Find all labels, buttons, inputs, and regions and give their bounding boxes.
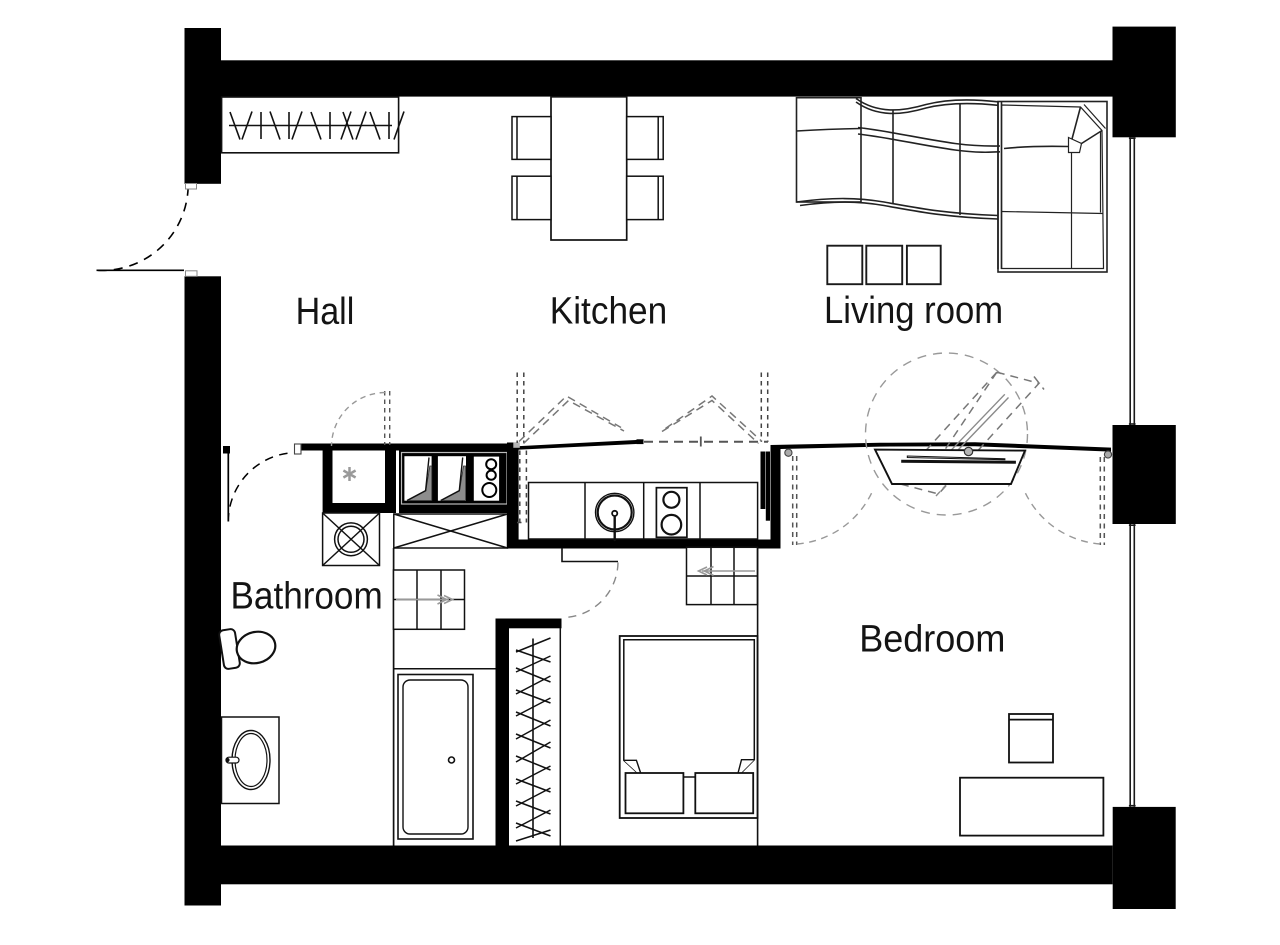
svg-text:Living room: Living room xyxy=(824,288,1003,331)
svg-text:Bedroom: Bedroom xyxy=(859,616,1005,659)
svg-text:Kitchen: Kitchen xyxy=(550,289,668,332)
svg-text:Hall: Hall xyxy=(296,289,355,332)
svg-text:Bathroom: Bathroom xyxy=(231,574,383,617)
